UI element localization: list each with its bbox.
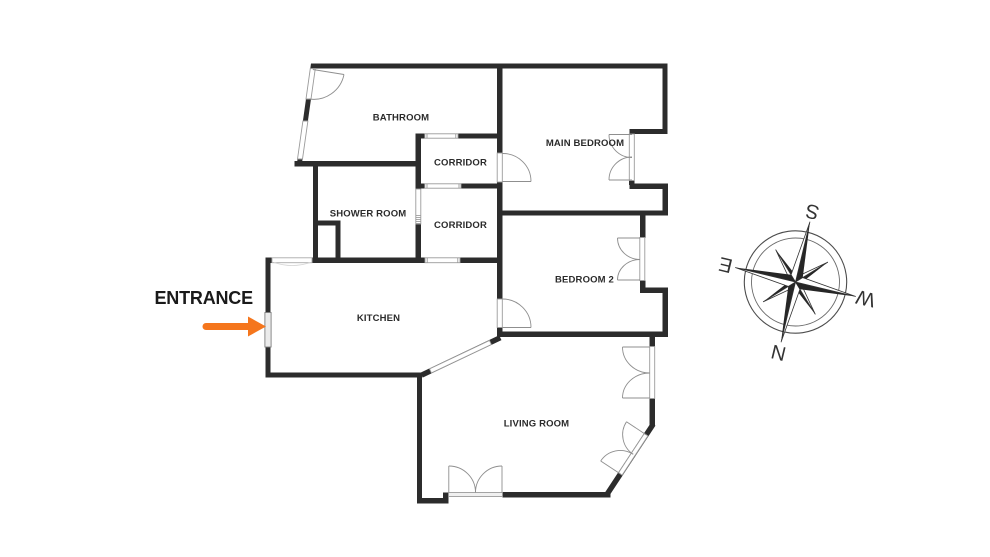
svg-text:BATHROOM: BATHROOM — [373, 113, 429, 124]
svg-text:MAIN BEDROOM: MAIN BEDROOM — [546, 138, 624, 149]
svg-text:BEDROOM 2: BEDROOM 2 — [555, 275, 614, 286]
svg-text:N: N — [769, 340, 788, 365]
svg-text:W: W — [854, 285, 878, 311]
svg-text:CORRIDOR: CORRIDOR — [434, 220, 487, 231]
svg-text:KITCHEN: KITCHEN — [357, 313, 400, 324]
svg-text:CORRIDOR: CORRIDOR — [434, 158, 487, 169]
svg-text:LIVING ROOM: LIVING ROOM — [504, 419, 570, 430]
svg-text:E: E — [717, 252, 735, 277]
svg-text:ENTRANCE: ENTRANCE — [155, 288, 254, 308]
svg-text:S: S — [803, 199, 821, 224]
svg-text:SHOWER ROOM: SHOWER ROOM — [330, 209, 407, 220]
